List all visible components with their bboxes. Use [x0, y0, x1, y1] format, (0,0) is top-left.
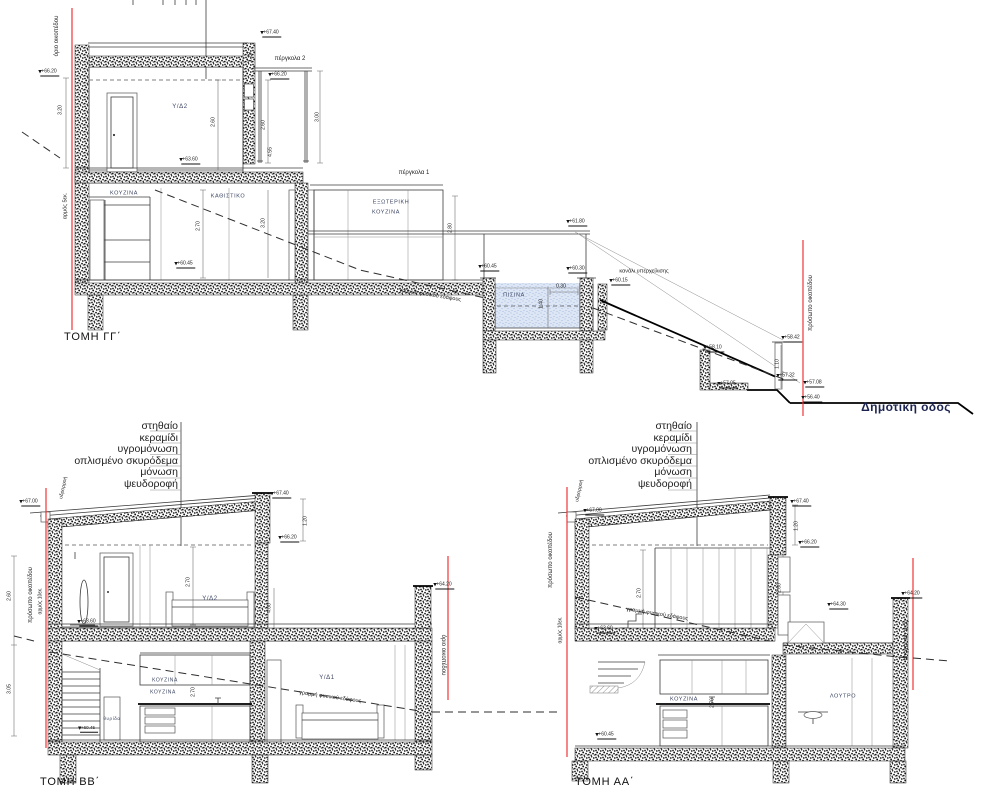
pergola-label: πέργκολα 2 — [275, 56, 306, 62]
level-label: +67.40 — [262, 31, 281, 38]
dimension-label: 2.60 — [262, 120, 267, 130]
callout-item: ψευδοροφή — [547, 479, 692, 491]
drawing-canvas: στηθαίο κεραμίδι υγρομόνωση οπλισμένο σκ… — [0, 0, 1000, 793]
dimension-label: 3.05 — [8, 684, 13, 694]
callout-item: στηθαίο — [547, 421, 692, 433]
level-label: +66.20 — [280, 536, 299, 543]
dimension-label: 4.00 — [268, 603, 273, 613]
dimension-label: 2.60 — [212, 117, 217, 127]
room-label: ΚΟΥΖΙΝΑ — [150, 691, 176, 696]
boundary-label: όριο οικοπέδου — [902, 620, 908, 661]
level-label: +58.10 — [705, 346, 724, 353]
level-label: +60.45 — [176, 262, 195, 269]
level-label: +60.15 — [611, 279, 630, 286]
level-label: +63.60 — [596, 627, 615, 634]
dimension-label: 2.70 — [197, 221, 202, 231]
level-label: +63.60 — [181, 158, 200, 165]
note-label: αρμός 10εκ. — [39, 588, 44, 615]
dimension-label: 3.00 — [316, 112, 321, 122]
room-label: ΚΑΘΙΣΤΙΚΟ — [211, 194, 246, 200]
dimension-label: 3.20 — [262, 218, 267, 228]
room-label: θυρίδα — [103, 717, 120, 722]
level-label: +60.45 — [480, 265, 499, 272]
level-label: +64.20 — [903, 592, 922, 599]
dimension-label: 2.70 — [638, 588, 643, 598]
dimension-label: 3.20 — [59, 105, 64, 115]
dimension-label: 1.20 — [795, 521, 800, 531]
dimension-label: 2.70 — [187, 577, 192, 587]
section-linework — [0, 0, 1000, 793]
level-label: +61.80 — [568, 220, 587, 227]
level-label: +60.45 — [80, 726, 98, 733]
pergola-label: πέργκολα 1 — [399, 170, 430, 176]
section-gg — [22, 0, 973, 416]
roof-assembly-callout-bb: στηθαίο κεραμίδι υγρομόνωση οπλισμένο σκ… — [55, 421, 178, 491]
level-label: +66.20 — [40, 70, 59, 77]
room-label: ΚΟΥΖΙΝΑ — [152, 679, 178, 684]
level-label: +67.40 — [792, 500, 811, 507]
room-label: ΚΟΥΖΙΝΑ — [670, 697, 698, 703]
level-label: +60.30 — [568, 267, 587, 274]
level-label: +66.20 — [800, 541, 819, 548]
room-label: Υ/Δ2 — [202, 596, 217, 602]
dimension-label: 4.55 — [269, 147, 274, 157]
boundary-label: όριο οικοπέδου — [54, 16, 60, 57]
level-label: +64.30 — [829, 603, 848, 610]
level-label: +64.20 — [435, 583, 454, 590]
level-label: +66.20 — [270, 73, 289, 80]
section-title-bb: ΤΟΜΗ ΒΒ΄ — [40, 776, 100, 788]
dimension-label: 1.20 — [304, 516, 309, 526]
callout-item: στηθαίο — [55, 421, 178, 433]
dimension-label: 2.60 — [8, 591, 13, 601]
dimension-label: 2.70 — [711, 698, 716, 708]
room-label: ΛΟΥΤΡΟ — [830, 694, 856, 700]
level-label: +57.08 — [805, 381, 824, 388]
boundary-label: πρόσωπο οικοπέδου — [548, 532, 554, 588]
level-label: +57.32 — [778, 374, 797, 381]
level-label: +57.05 — [719, 382, 738, 389]
dimension-label: 2.60 — [778, 583, 783, 593]
room-label: ΚΟΥΖΙΝΑ — [110, 191, 138, 197]
room-label: Υ/Δ1 — [319, 675, 334, 681]
room-label: ΠΙΣΙΝΑ — [503, 293, 525, 299]
level-label: +56.40 — [803, 396, 822, 403]
section-title-gg: ΤΟΜΗ ΓΓ΄ — [64, 331, 121, 343]
boundary-label: όριο οικοπέδου — [440, 635, 446, 676]
level-label: +58.42 — [783, 336, 802, 343]
room-label: Υ/Δ2 — [172, 104, 187, 110]
road-label: Δημοτική οδός — [861, 401, 951, 413]
room-label: ΚΟΥΖΙΝΑ — [372, 210, 400, 216]
note-label: αρμός 10εκ. — [559, 617, 564, 644]
dimension-label: 1.40 — [540, 299, 545, 309]
note-label: κανάλι υπερχείλισης — [619, 269, 668, 275]
note-label: αρμός 5εκ. — [63, 193, 69, 220]
room-label: ΕΞΩΤΕΡΙΚΗ — [373, 200, 410, 206]
level-label: +60.45 — [597, 733, 616, 740]
dimension-label: 2.80 — [449, 223, 454, 233]
level-label: +67.00 — [585, 509, 604, 516]
level-label: +67.00 — [21, 500, 40, 507]
level-label: +67.40 — [272, 492, 291, 499]
dimension-label: 1.10 — [776, 359, 781, 369]
dimension-label: 2.70 — [192, 687, 197, 697]
boundary-label: πρόσωπο οικοπέδου — [808, 275, 814, 331]
callout-item: ψευδοροφή — [55, 479, 178, 491]
dimension-label: 0.30 — [556, 285, 566, 290]
section-title-aa: ΤΟΜΗ ΑΑ΄ — [575, 776, 634, 788]
level-label: +63.60 — [79, 620, 98, 627]
boundary-label: πρόσωπο οικοπέδου — [28, 567, 34, 623]
dimension-label: 1.20 — [249, 52, 254, 62]
roof-assembly-callout-aa: στηθαίο κεραμίδι υγρομόνωση οπλισμένο σκ… — [547, 421, 692, 491]
